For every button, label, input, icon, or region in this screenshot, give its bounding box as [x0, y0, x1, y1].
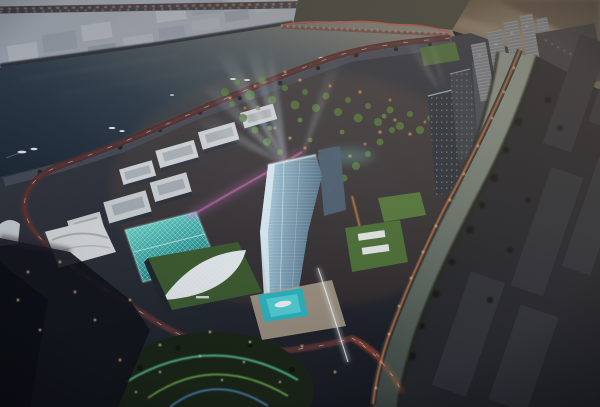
scene-canvas: [0, 0, 600, 407]
vignette-overlay: [0, 0, 600, 407]
aerial-render-image: [0, 0, 600, 407]
